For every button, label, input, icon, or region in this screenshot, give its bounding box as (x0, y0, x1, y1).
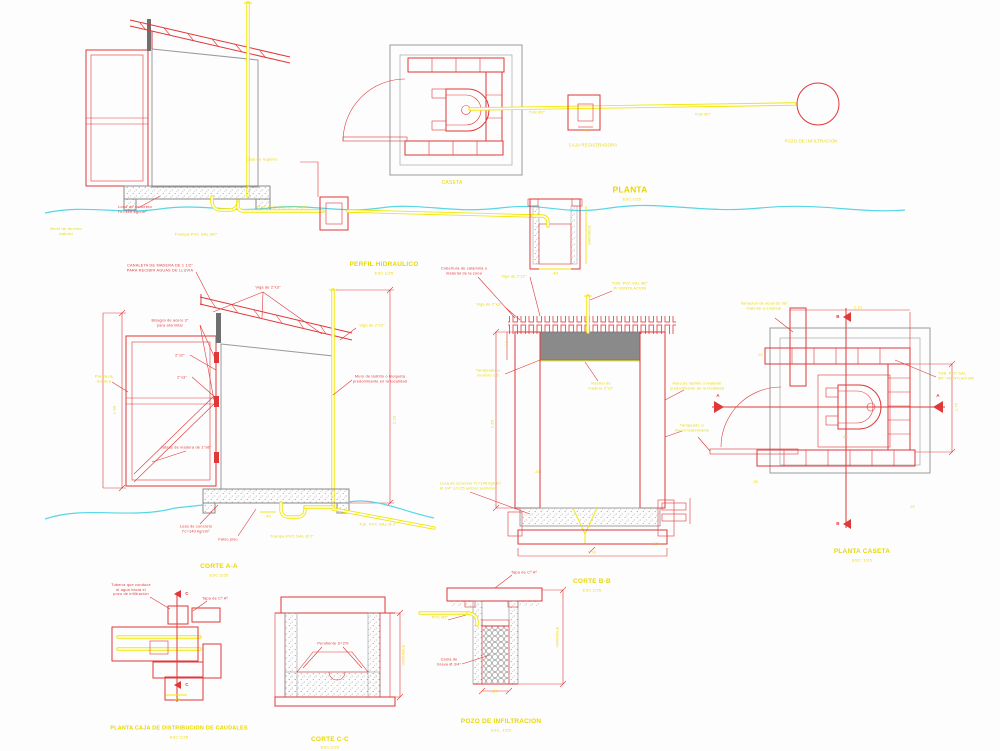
wall-left (515, 332, 540, 508)
joist-band (508, 316, 676, 334)
brick-wall-section (221, 344, 333, 489)
view-pozo-infiltracion (420, 575, 566, 694)
door-swing-2 (721, 387, 781, 447)
door-swing (343, 79, 405, 141)
door-section (126, 336, 216, 486)
foundation-slab (124, 186, 270, 199)
base (275, 697, 395, 706)
cad-drawing-canvas: Losa de concreto f'c=140 kg/cm²Trampa PV… (0, 0, 1000, 751)
concrete-slab (540, 332, 640, 360)
top-slab (281, 597, 385, 613)
top-slab (447, 588, 542, 601)
benching (285, 672, 380, 697)
gravel-fill (539, 224, 571, 264)
foundation-section (203, 489, 349, 503)
door-leaf (343, 137, 407, 141)
view-corte-aa (45, 272, 434, 536)
wall-bottom (405, 141, 503, 155)
p-trap-section (281, 503, 305, 517)
toilet-plan-2 (818, 375, 890, 447)
base-slab (518, 530, 667, 544)
view-planta-caseta (698, 308, 955, 529)
terrain-line (45, 205, 905, 213)
wall-top (765, 348, 910, 364)
view-perfil-hidraulico (86, 3, 586, 269)
brick-wall (152, 49, 258, 187)
view-planta-caja (112, 590, 221, 702)
vent-duct (790, 308, 806, 386)
distribution-box (112, 627, 198, 661)
wall-right (640, 332, 665, 508)
drawing-layer (0, 0, 1000, 751)
view-planta (343, 45, 839, 175)
caja-registradora (568, 95, 600, 130)
roof (130, 20, 290, 63)
view-corte-cc (275, 597, 403, 706)
pozo-infiltracion-circle (797, 83, 839, 125)
caja-registro (320, 197, 348, 230)
view-corte-bb (470, 277, 690, 556)
wall-right (509, 601, 518, 684)
wall-bottom (757, 450, 915, 466)
gravel-fill (483, 626, 508, 683)
